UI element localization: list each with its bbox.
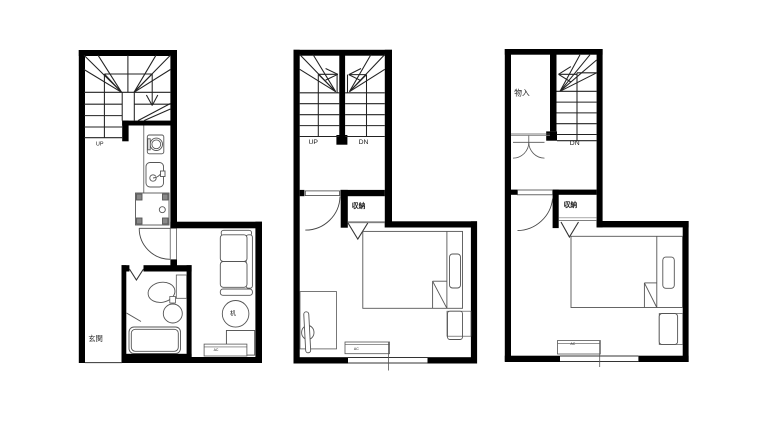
svg-text:玄関: 玄関 bbox=[88, 334, 102, 343]
svg-text:DN: DN bbox=[570, 140, 580, 147]
svg-text:収納: 収納 bbox=[564, 200, 578, 209]
svg-text:UP: UP bbox=[96, 142, 104, 148]
svg-text:物入: 物入 bbox=[514, 88, 530, 98]
svg-text:AC: AC bbox=[354, 347, 359, 351]
svg-text:収納: 収納 bbox=[352, 201, 366, 210]
svg-text:AC: AC bbox=[570, 342, 575, 346]
svg-text:DN: DN bbox=[359, 139, 369, 146]
svg-text:机: 机 bbox=[230, 310, 236, 318]
svg-text:UP: UP bbox=[308, 139, 318, 146]
svg-text:AC: AC bbox=[214, 348, 219, 352]
